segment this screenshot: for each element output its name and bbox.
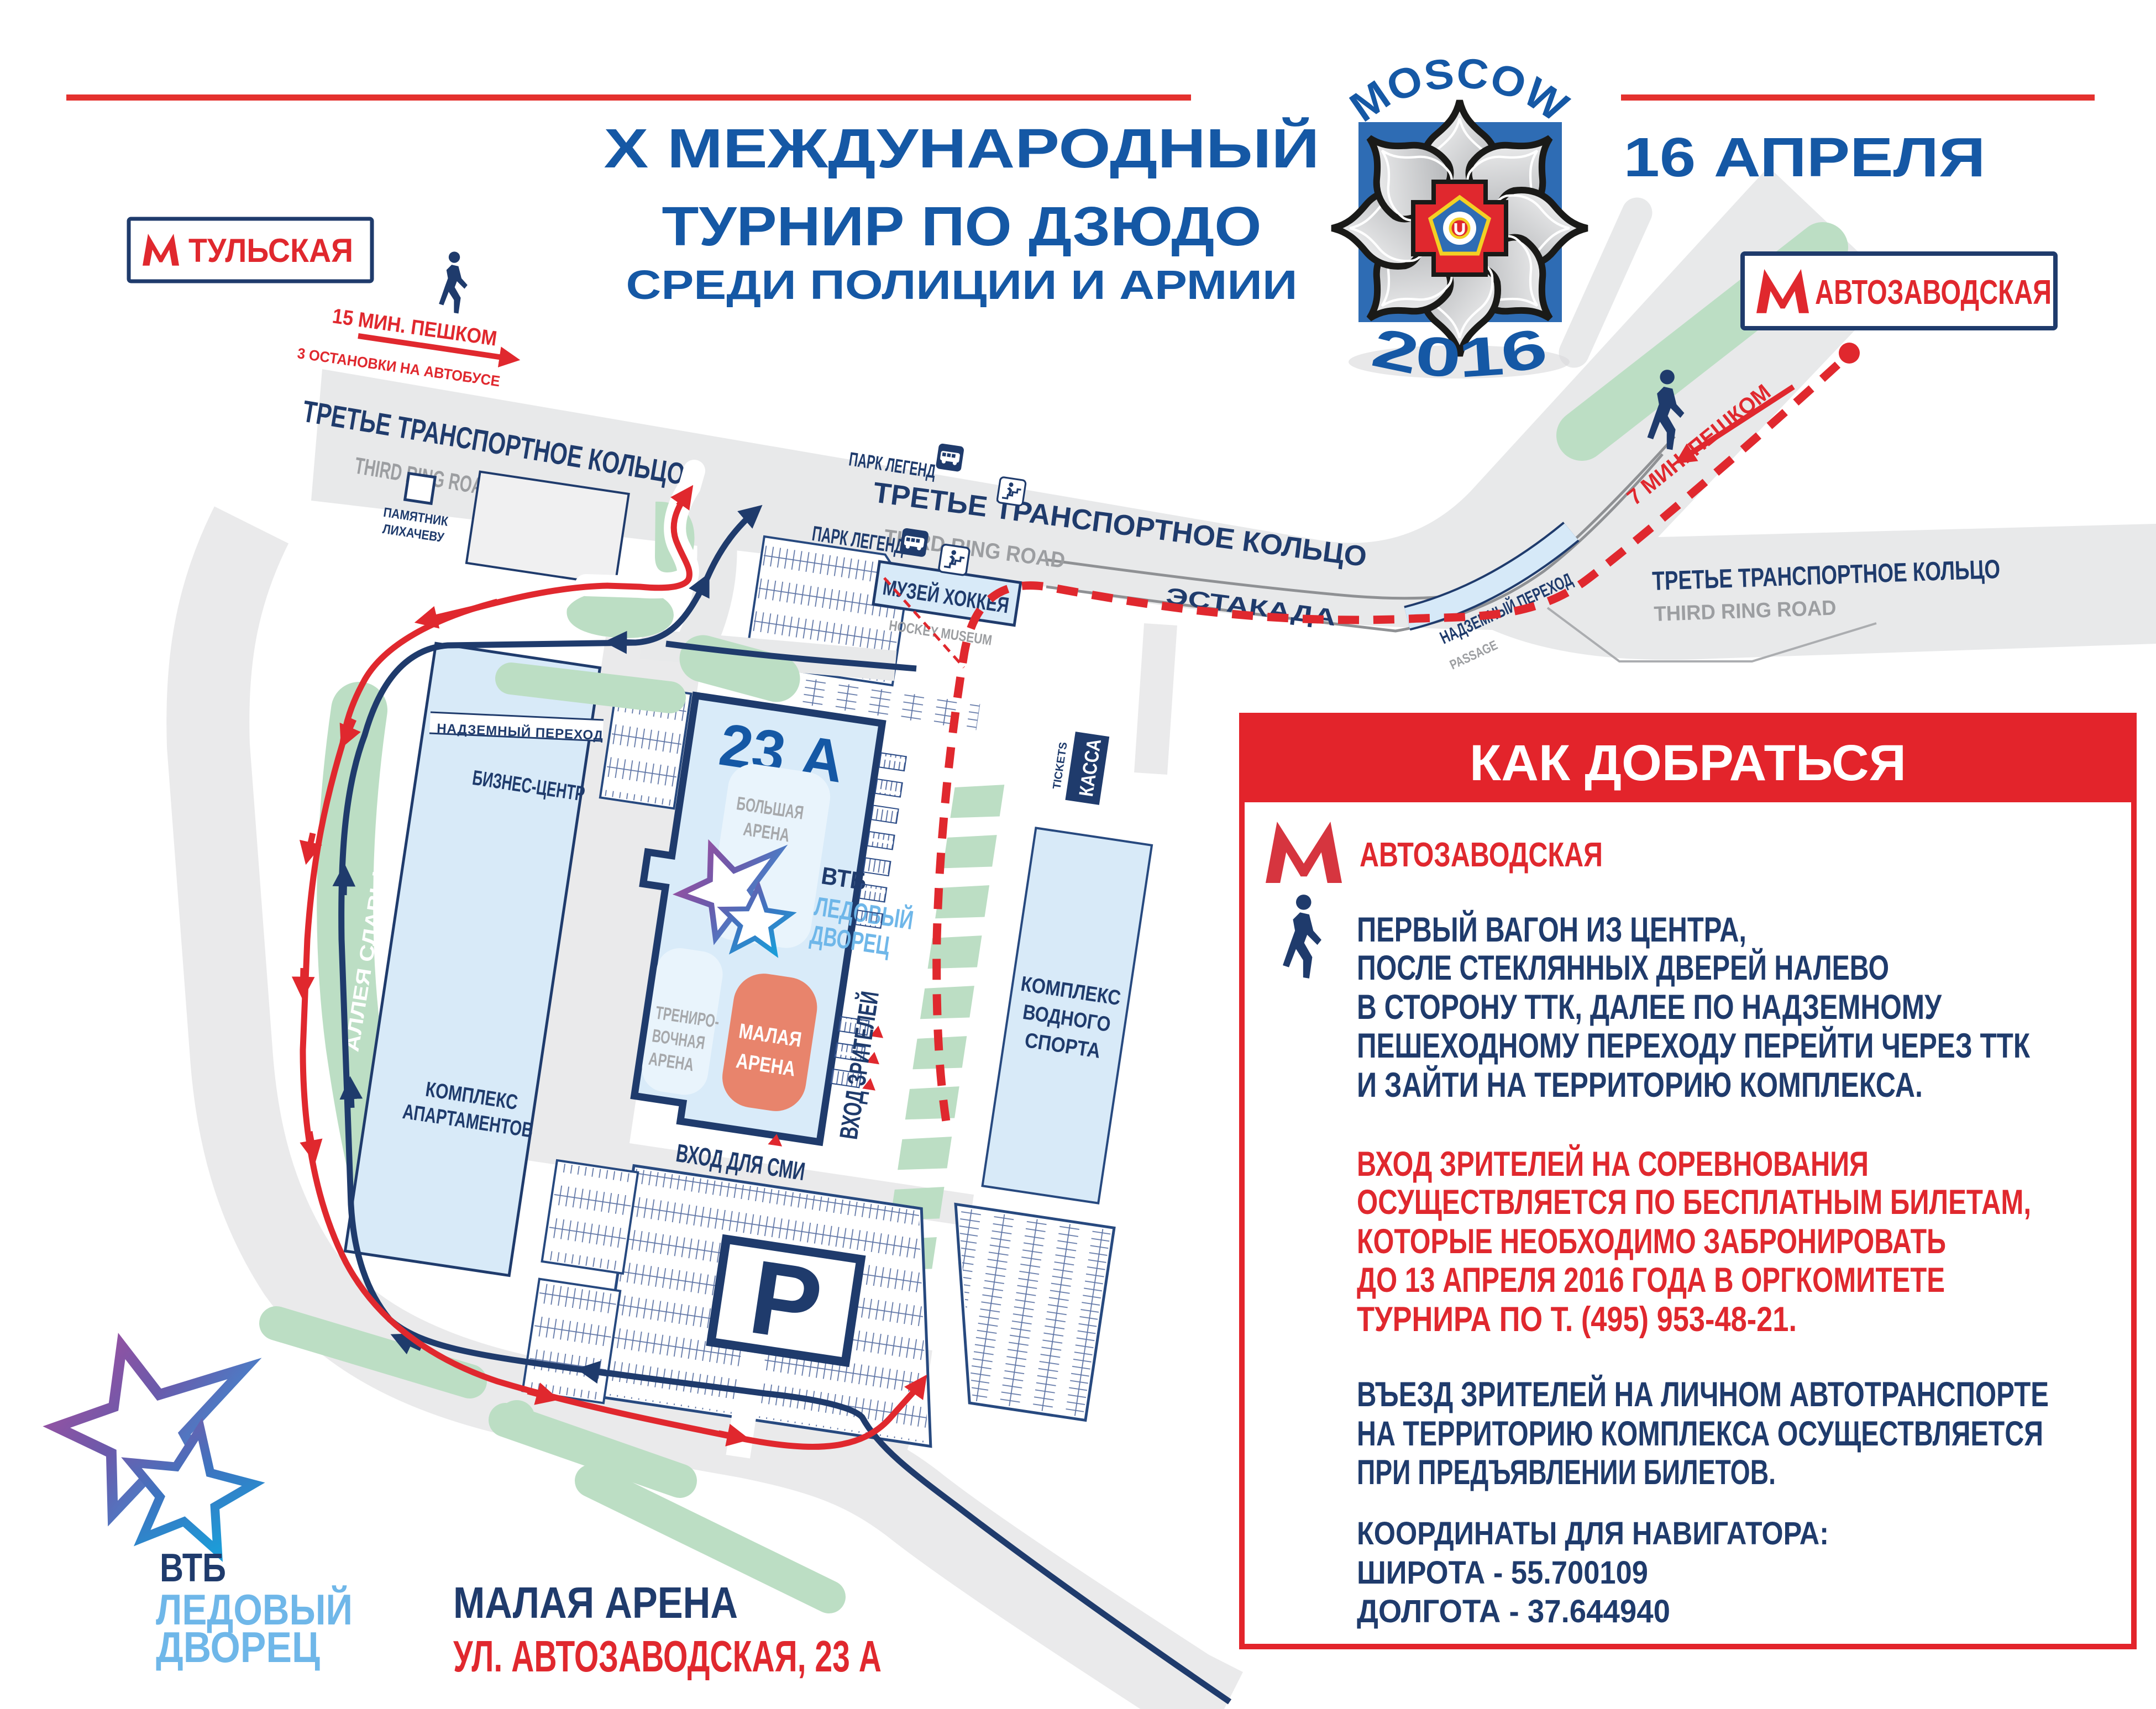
svg-text:ВТБ: ВТБ: [160, 1546, 226, 1590]
svg-text:СРЕДИ ПОЛИЦИИ И АРМИИ: СРЕДИ ПОЛИЦИИ И АРМИИ: [626, 262, 1298, 308]
svg-text:В СТОРОНУ ТТК, ДАЛЕЕ ПО НАДЗЕМ: В СТОРОНУ ТТК, ДАЛЕЕ ПО НАДЗЕМНОМУ: [1357, 988, 1942, 1027]
svg-text:УЛ. АВТОЗАВОДСКАЯ, 23 А: УЛ. АВТОЗАВОДСКАЯ, 23 А: [453, 1632, 882, 1681]
svg-text:ТУЛЬСКАЯ: ТУЛЬСКАЯ: [188, 232, 353, 269]
svg-text:ПОСЛЕ СТЕКЛЯННЫХ ДВЕРЕЙ НАЛЕВО: ПОСЛЕ СТЕКЛЯННЫХ ДВЕРЕЙ НАЛЕВО: [1357, 948, 1889, 987]
svg-text:ВХОД ЗРИТЕЛЕЙ НА СОРЕВНОВАНИЯ: ВХОД ЗРИТЕЛЕЙ НА СОРЕВНОВАНИЯ: [1357, 1144, 1869, 1184]
svg-text:ПЕРВЫЙ ВАГОН ИЗ ЦЕНТРА,: ПЕРВЫЙ ВАГОН ИЗ ЦЕНТРА,: [1357, 910, 1746, 949]
svg-text:ДВОРЕЦ: ДВОРЕЦ: [156, 1623, 320, 1671]
svg-text:ДО 13 АПРЕЛЯ 2016 ГОДА В ОРГКО: ДО 13 АПРЕЛЯ 2016 ГОДА В ОРГКОМИТЕТЕ: [1357, 1261, 1945, 1300]
svg-text:ШИРОТА - 55.700109: ШИРОТА - 55.700109: [1357, 1555, 1648, 1591]
svg-text:ПЕШЕХОДНОМУ ПЕРЕХОДУ ПЕРЕЙТИ Ч: ПЕШЕХОДНОМУ ПЕРЕХОДУ ПЕРЕЙТИ ЧЕРЕЗ ТТК: [1357, 1026, 2030, 1065]
svg-text:16 АПРЕЛЯ: 16 АПРЕЛЯ: [1624, 127, 1986, 188]
svg-text:МАЛАЯ АРЕНА: МАЛАЯ АРЕНА: [453, 1578, 738, 1627]
svg-text:ОСУЩЕСТВЛЯЕТСЯ ПО БЕСПЛАТНЫМ Б: ОСУЩЕСТВЛЯЕТСЯ ПО БЕСПЛАТНЫМ БИЛЕТАМ,: [1357, 1183, 2031, 1222]
svg-text:ТУРНИР ПО ДЗЮДО: ТУРНИР ПО ДЗЮДО: [662, 196, 1262, 257]
svg-text:ДОЛГОТА - 37.644940: ДОЛГОТА - 37.644940: [1357, 1594, 1670, 1629]
svg-text:И ЗАЙТИ НА ТЕРРИТОРИЮ КОМПЛЕКС: И ЗАЙТИ НА ТЕРРИТОРИЮ КОМПЛЕКСА.: [1357, 1065, 1923, 1105]
svg-text:ПРИ ПРЕДЪЯВЛЕНИИ БИЛЕТОВ.: ПРИ ПРЕДЪЯВЛЕНИИ БИЛЕТОВ.: [1357, 1453, 1776, 1492]
svg-text:ВЪЕЗД ЗРИТЕЛЕЙ НА ЛИЧНОМ АВТОТ: ВЪЕЗД ЗРИТЕЛЕЙ НА ЛИЧНОМ АВТОТРАНСПОРТЕ: [1357, 1375, 2049, 1414]
svg-text:КОТОРЫЕ НЕОБХОДИМО ЗАБРОНИРОВА: КОТОРЫЕ НЕОБХОДИМО ЗАБРОНИРОВАТЬ: [1357, 1222, 1946, 1261]
svg-text:Х МЕЖДУНАРОДНЫЙ: Х МЕЖДУНАРОДНЫЙ: [604, 117, 1320, 180]
svg-text:КООРДИНАТЫ ДЛЯ НАВИГАТОРА:: КООРДИНАТЫ ДЛЯ НАВИГАТОРА:: [1357, 1516, 1829, 1552]
svg-text:АВТОЗАВОДСКАЯ: АВТОЗАВОДСКАЯ: [1360, 836, 1603, 874]
svg-text:АВТОЗАВОДСКАЯ: АВТОЗАВОДСКАЯ: [1815, 274, 2052, 312]
svg-text:ТУРНИРА ПО Т. (495) 953-48-21.: ТУРНИРА ПО Т. (495) 953-48-21.: [1357, 1300, 1797, 1339]
svg-text:НА ТЕРРИТОРИЮ КОМПЛЕКСА ОСУЩЕС: НА ТЕРРИТОРИЮ КОМПЛЕКСА ОСУЩЕСТВЛЯЕТСЯ: [1357, 1414, 2043, 1453]
svg-text:КАК ДОБРАТЬСЯ: КАК ДОБРАТЬСЯ: [1470, 735, 1906, 791]
